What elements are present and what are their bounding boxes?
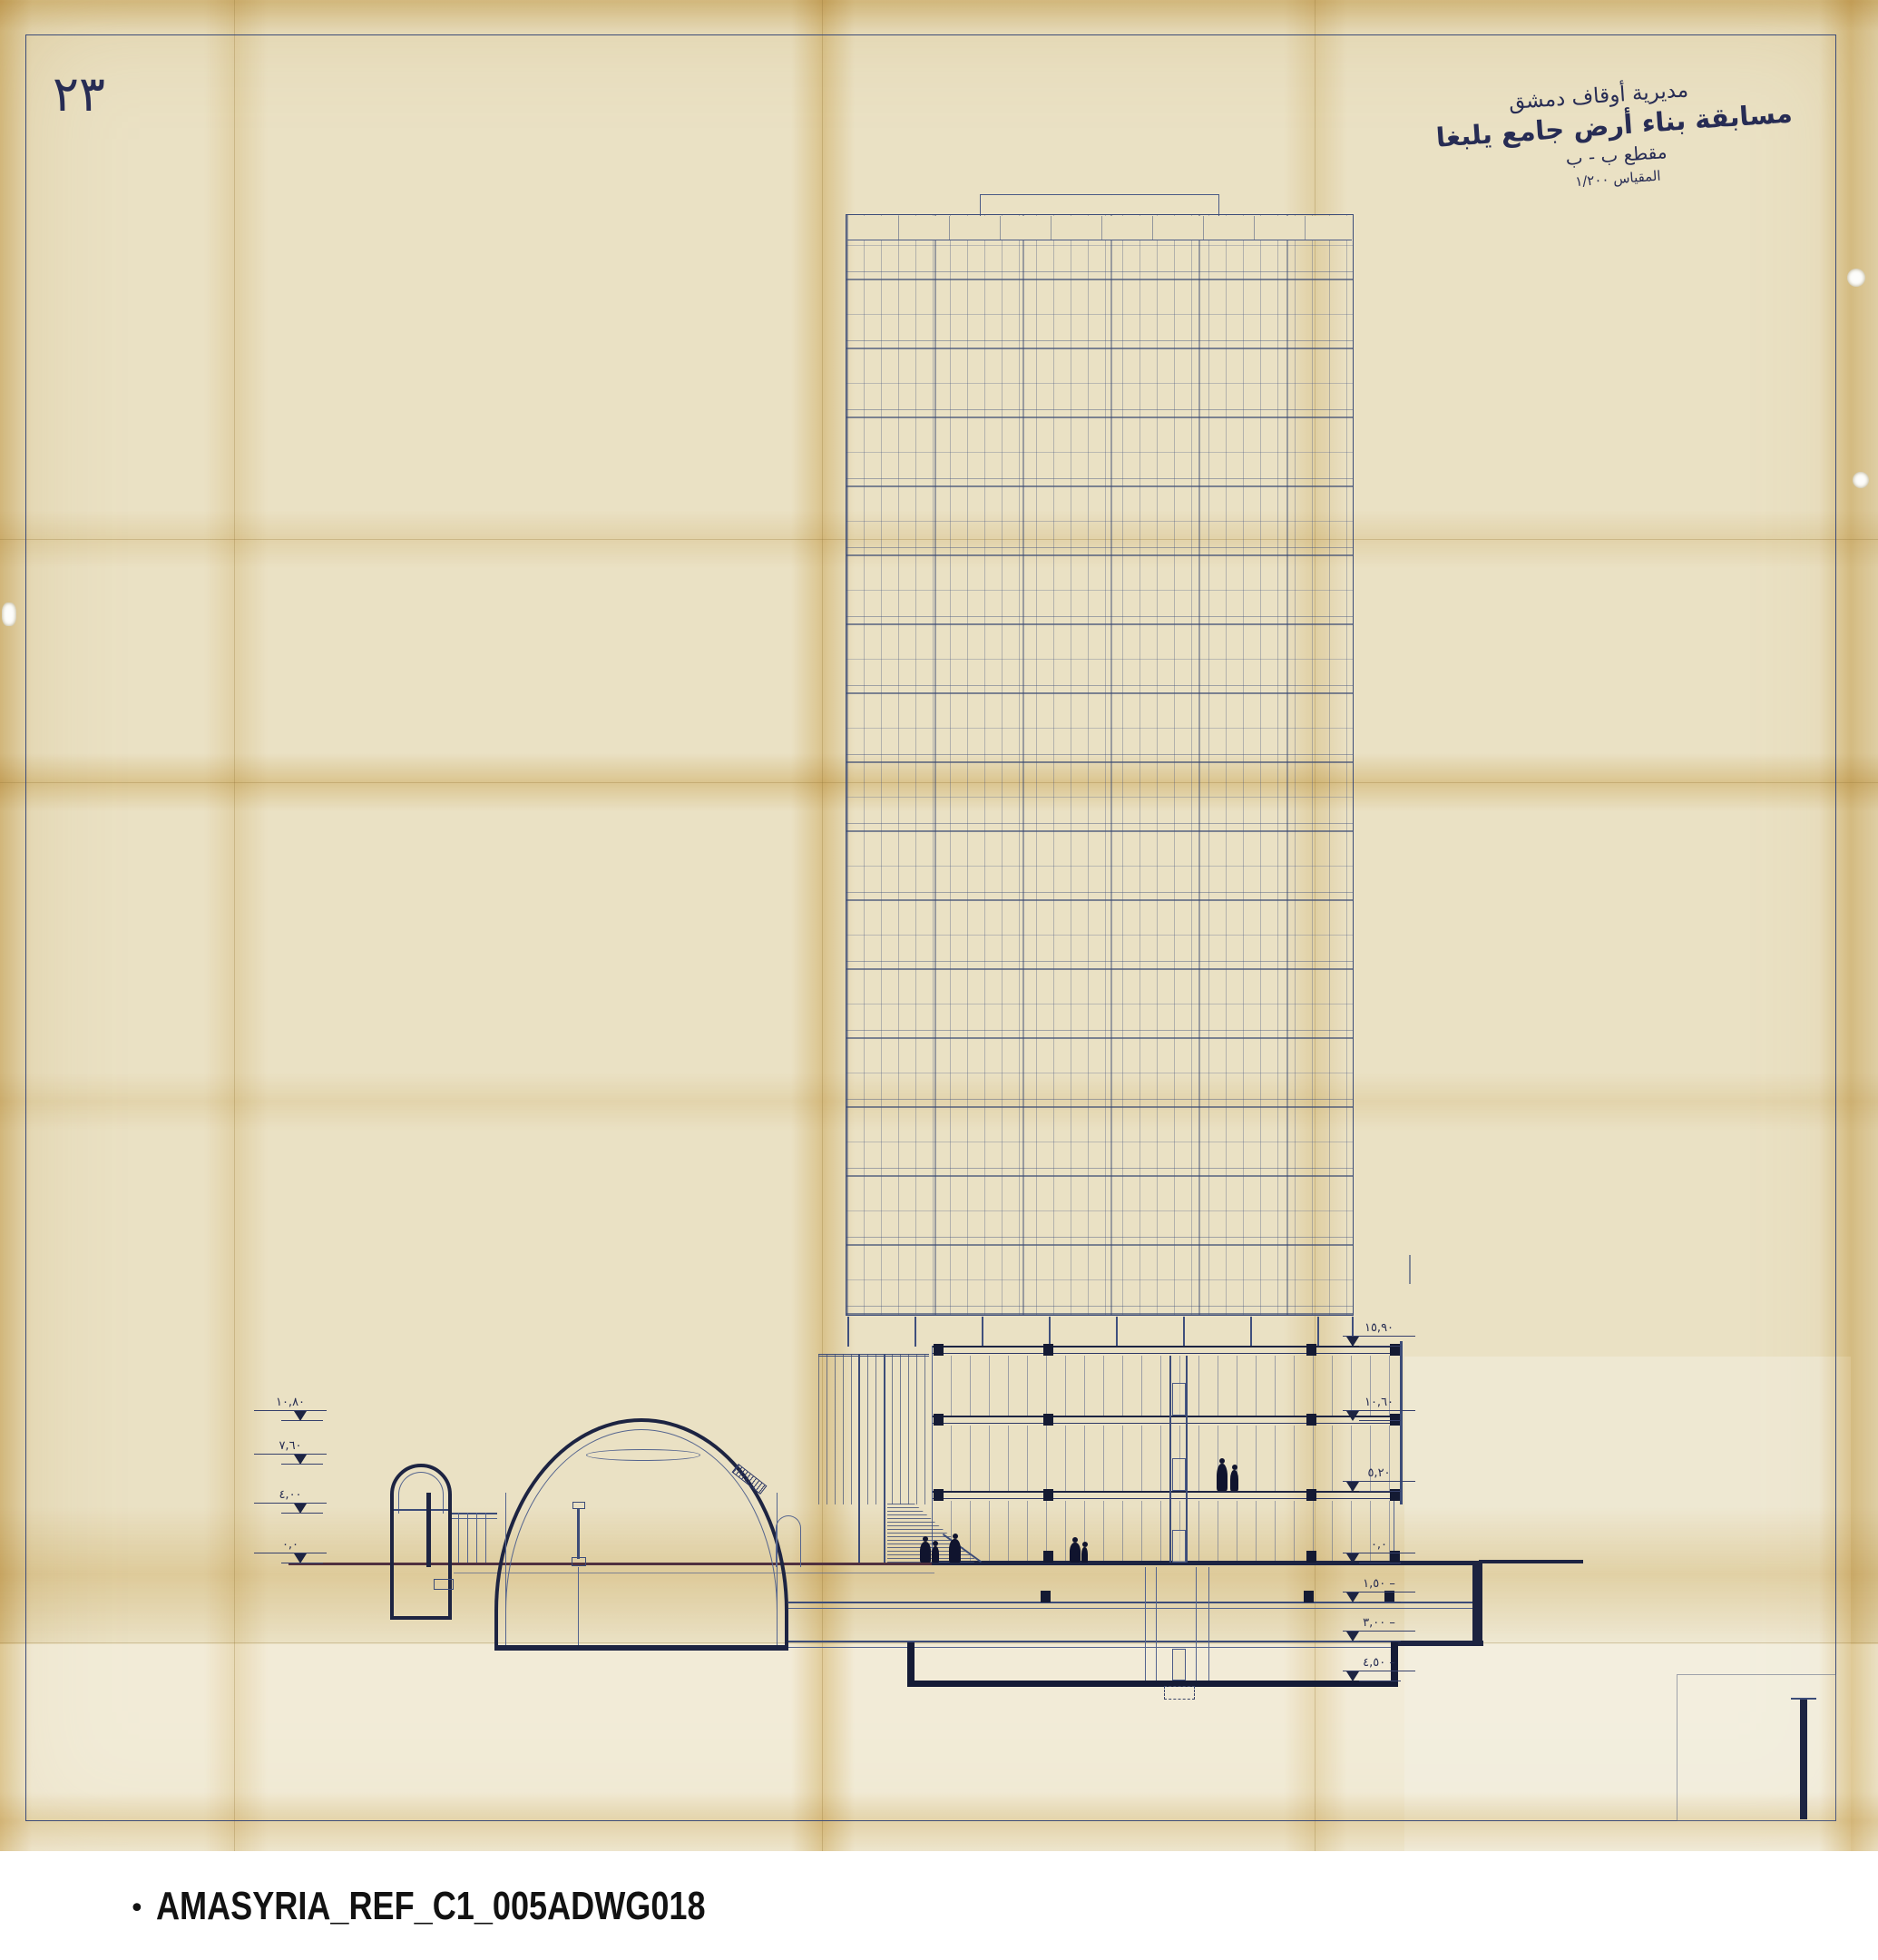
level-baseline: [1359, 1491, 1401, 1492]
glazing-mullions: [932, 1501, 1400, 1561]
basement-door: [1172, 1649, 1186, 1681]
floor-slab-2: [932, 1416, 1400, 1424]
roof-slab: [932, 1346, 1400, 1354]
basement-core-line: [1156, 1567, 1157, 1681]
level-label: ٧,٦٠: [254, 1440, 327, 1455]
louvre-screen: [818, 1354, 929, 1504]
screen-post: [858, 1354, 860, 1563]
level-baseline: [1359, 1681, 1401, 1681]
page-number: ٢٣: [53, 65, 105, 122]
person-figure: [1217, 1464, 1228, 1491]
level-marker: ٣,٠٠ –: [1343, 1617, 1415, 1632]
person-figure: [1081, 1547, 1088, 1563]
level-triangle-icon: [1346, 1553, 1359, 1563]
floor-slab-1: [932, 1491, 1400, 1499]
level-label: ٤,٥٠ –: [1343, 1657, 1415, 1671]
basement-core-line: [1196, 1567, 1197, 1681]
level-marker: ١,٥٠ –: [1343, 1578, 1415, 1592]
basement-core-line: [1145, 1567, 1146, 1681]
sheet-border-right: [1835, 34, 1836, 1820]
scan-blemish: [2, 603, 16, 626]
level-triangle-icon: [1346, 1671, 1359, 1681]
person-figure: [949, 1539, 961, 1563]
core-door: [1172, 1458, 1186, 1491]
column: [1043, 1551, 1053, 1563]
level-triangle-icon: [1346, 1411, 1359, 1421]
corner-reference-box: [1677, 1674, 1836, 1821]
level-marker: ٠,٠: [1343, 1539, 1415, 1553]
level-marker: ٥,٢٠: [1343, 1467, 1415, 1482]
stray-mark: [1409, 1255, 1411, 1284]
basement-slab-1-lower: [788, 1608, 1472, 1609]
level-label: ١٠,٦٠: [1343, 1396, 1415, 1411]
level-marker: ٠,٠: [254, 1539, 327, 1553]
punch-hole: [1847, 269, 1865, 287]
column: [1306, 1414, 1316, 1426]
person-figure: [1070, 1543, 1081, 1563]
dome-skylight: [586, 1449, 700, 1461]
bridge-rail: [476, 1513, 477, 1563]
level-baseline: [281, 1420, 323, 1421]
column: [934, 1344, 944, 1356]
level-label: ١٥,٩٠: [1343, 1322, 1415, 1337]
level-triangle-icon: [1346, 1592, 1359, 1602]
sheet-border-top: [25, 34, 1836, 35]
basement-column: [1304, 1591, 1314, 1602]
level-label: ٠,٠: [254, 1539, 327, 1553]
bridge-rail: [485, 1513, 486, 1563]
core-wall: [1169, 1356, 1171, 1563]
glazing-mullions: [932, 1426, 1400, 1491]
footer-reference-code: AMASYRIA_REF_C1_005ADWG018: [156, 1884, 706, 1929]
tower-strut: [847, 1317, 849, 1347]
dome-wall-inner-line: [777, 1493, 778, 1645]
tower-parapet-outline: [980, 194, 1219, 216]
level-label: ١,٥٠ –: [1343, 1578, 1415, 1592]
bridge-rail: [467, 1513, 468, 1563]
level-marker: ١٥,٩٠: [1343, 1322, 1415, 1337]
screen-post: [884, 1354, 885, 1563]
dome-side-niche: [776, 1515, 801, 1567]
corner-scale-tick: [1791, 1698, 1816, 1700]
column: [1043, 1414, 1053, 1426]
pole-lower-line: [578, 1567, 579, 1645]
glazing-mullions: [932, 1356, 1400, 1416]
basement-wall-left: [907, 1642, 915, 1686]
prayer-hall-floor: [494, 1645, 788, 1651]
tower-strut: [1116, 1317, 1118, 1347]
level-triangle-icon: [1346, 1337, 1359, 1347]
pole-cap: [572, 1502, 585, 1509]
tower-top-band: [847, 216, 1352, 240]
basement-bottom-slab: [907, 1681, 1397, 1687]
pole-base: [572, 1557, 586, 1566]
person-figure: [920, 1542, 931, 1563]
foundation-dashed-outline: [1164, 1686, 1195, 1700]
level-label: ٣,٠٠ –: [1343, 1617, 1415, 1632]
level-baseline: [1359, 1420, 1401, 1421]
level-marker: ١٠,٨٠: [254, 1396, 327, 1411]
level-marker: ٤,٠٠: [254, 1489, 327, 1504]
minaret-inner-line: [398, 1472, 444, 1514]
column: [934, 1489, 944, 1501]
ground-step-wall: [1472, 1563, 1482, 1646]
sheet-border-bottom: [25, 1820, 1836, 1821]
dome-wall-inner-line: [505, 1493, 506, 1645]
level-marker: ٤,٥٠ –: [1343, 1657, 1415, 1671]
scanned-drawing-sheet: ٢٣ مديرية أوقاف دمشق مسابقة بناء أرض جام…: [0, 0, 1878, 1960]
column: [1306, 1344, 1316, 1356]
level-baseline: [1359, 1563, 1401, 1563]
column: [1306, 1489, 1316, 1501]
sheet-border-left: [25, 34, 26, 1820]
level-baseline: [281, 1464, 323, 1465]
column: [1306, 1551, 1316, 1563]
person-figure: [1230, 1470, 1238, 1491]
footer-bullet: •: [129, 1893, 145, 1925]
tower-strut: [915, 1317, 916, 1347]
person-figure: [932, 1546, 939, 1563]
level-label: ١٠,٨٠: [254, 1396, 327, 1411]
level-baseline: [1359, 1602, 1401, 1602]
tower-strut: [1317, 1317, 1319, 1347]
basement-slab-2-lower: [788, 1647, 1391, 1648]
minaret-inner-wall: [426, 1493, 431, 1567]
level-label: ٤,٠٠: [254, 1489, 327, 1504]
level-label: ٠,٠: [1343, 1539, 1415, 1553]
bridge-rail: [458, 1513, 459, 1563]
tower-strut: [1250, 1317, 1252, 1347]
pole-shaft: [577, 1509, 580, 1559]
column: [1043, 1489, 1053, 1501]
ground-line-right: [1479, 1560, 1583, 1563]
basement-slab-2: [788, 1641, 1391, 1642]
level-marker: ٧,٦٠: [254, 1440, 327, 1455]
corner-scale-bar: [1800, 1699, 1807, 1819]
level-label: ٥,٢٠: [1343, 1467, 1415, 1482]
basement-column: [1041, 1591, 1051, 1602]
basement-core-line: [1208, 1567, 1209, 1681]
level-marker: ١٠,٦٠: [1343, 1396, 1415, 1411]
tower-strut: [982, 1317, 983, 1347]
core-wall: [1186, 1356, 1188, 1563]
minaret-floor-line: [394, 1509, 448, 1511]
tower-strut: [1049, 1317, 1051, 1347]
punch-hole: [1853, 472, 1869, 488]
tower-strut: [1183, 1317, 1185, 1347]
level-triangle-icon: [1346, 1482, 1359, 1492]
column: [1043, 1344, 1053, 1356]
level-baseline: [1359, 1346, 1401, 1347]
minaret-base-step: [434, 1579, 454, 1590]
level-triangle-icon: [1346, 1632, 1359, 1641]
column: [934, 1414, 944, 1426]
basement-slab-2-right: [1391, 1641, 1483, 1646]
level-baseline: [281, 1563, 323, 1563]
level-baseline: [281, 1513, 323, 1514]
tower-curtainwall-grid: [846, 214, 1354, 1316]
core-door: [1172, 1383, 1186, 1416]
core-door: [1172, 1530, 1186, 1563]
level-baseline: [1359, 1641, 1401, 1641]
